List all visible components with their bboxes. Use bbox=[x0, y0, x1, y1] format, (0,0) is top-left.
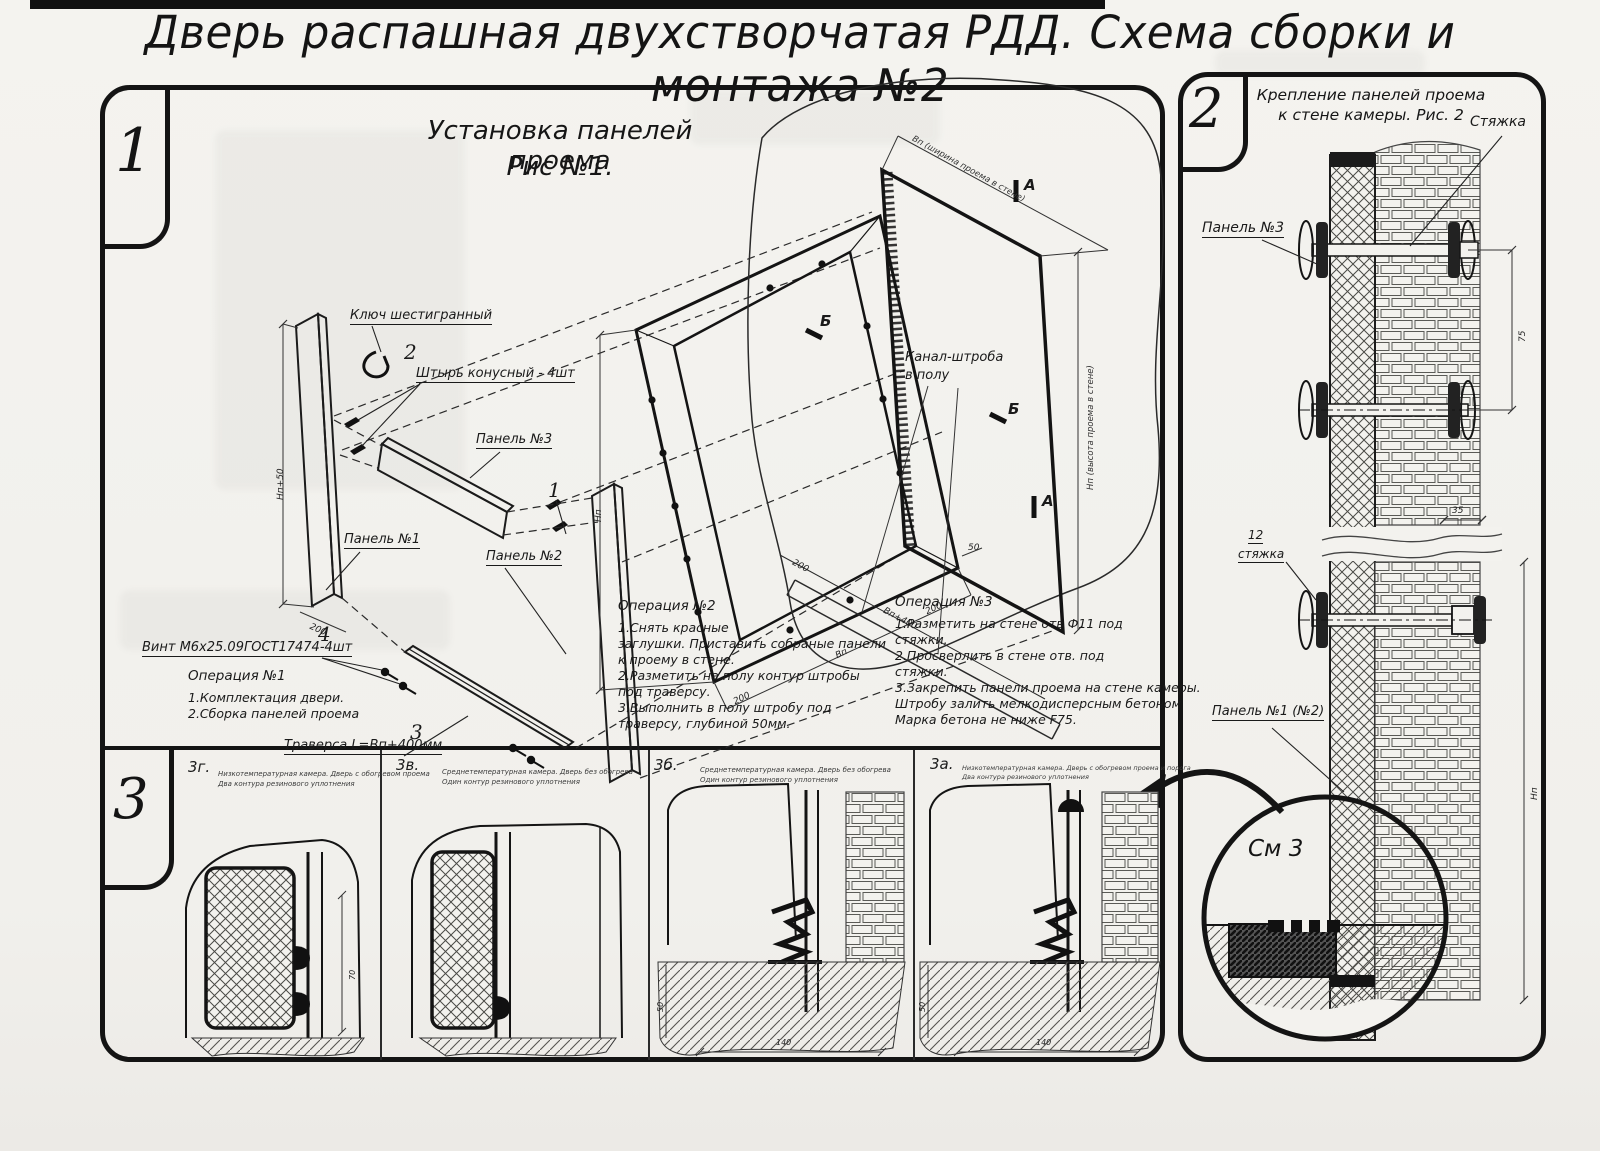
wall-opening bbox=[882, 170, 1063, 632]
operation-3-line: стяжки. bbox=[895, 632, 1201, 648]
figure2-title-line1: Крепление панелей проема bbox=[1256, 86, 1486, 104]
view-3a-caption1: Низкотемпературная камера. Дверь с обогр… bbox=[962, 764, 1191, 772]
label-channel-line2: в полу bbox=[905, 368, 949, 383]
operation-2-line: траверсу, глубиной 50мм. bbox=[618, 716, 886, 732]
label-panel3: Панель №3 bbox=[476, 432, 552, 449]
figure2-title-line2: к стене камеры. Рис. 2 bbox=[1256, 106, 1486, 124]
dim-wall-height: Нп bbox=[1530, 787, 1540, 800]
operation-3-line: стяжки. bbox=[895, 664, 1201, 680]
label-item1: 1 bbox=[548, 478, 561, 502]
operation-3-line: 1.Разметить на стене отв Ф11 под bbox=[895, 616, 1201, 632]
fig2-wall-upper bbox=[1375, 141, 1480, 525]
label-cone-pin: Штырь конусный - 4шт bbox=[416, 366, 575, 383]
operation-2-line: 2.Разметить на полу контур штробы bbox=[618, 668, 886, 684]
section-cut-flags bbox=[806, 180, 1034, 518]
operation-2-line: 1.Снять красные bbox=[618, 620, 886, 636]
view-3v-caption2: Один контур резинового уплотнения bbox=[442, 778, 580, 786]
view-3b-dim-h: 140 bbox=[776, 1038, 791, 1047]
view-3g-id: 3г. bbox=[188, 758, 210, 776]
label-see-3: См 3 bbox=[1248, 836, 1303, 862]
dim-np: Нп bbox=[594, 509, 604, 522]
view-3b-caption1: Среднетемпературная камера. Дверь без об… bbox=[700, 766, 891, 774]
operation-2: Операция №2 1.Снять красные заглушки. Пр… bbox=[618, 598, 886, 732]
label-panel12: Панель №1 (№2) bbox=[1212, 704, 1324, 721]
dim-np50: Нп+50 bbox=[276, 468, 286, 500]
view-3g-caption2: Два контура резинового уплотнения bbox=[218, 780, 355, 788]
view-3b-caption2: Один контур резинового уплотнения bbox=[700, 776, 838, 784]
operation-3-line: 3.Закрепить панели проема на стене камер… bbox=[895, 680, 1201, 696]
label-screw: Винт М6х25.09ГОСТ17474-4шт bbox=[142, 640, 352, 657]
label-pin-number: 2 bbox=[404, 340, 417, 364]
view-3g bbox=[186, 840, 364, 1056]
dim-35: 35 bbox=[1452, 506, 1463, 516]
label-hex-key: Ключ шестигранный bbox=[350, 308, 492, 325]
cut-mark-b2: Б bbox=[1008, 400, 1019, 418]
label-traverse: Траверса L=Вп+400мм bbox=[284, 738, 442, 755]
view-3v bbox=[412, 824, 622, 1056]
operation-3-line: 2.Просверлить в стене отв. под bbox=[895, 648, 1201, 664]
operation-2-line: к проему в стене. bbox=[618, 652, 886, 668]
view-3a-dim-v: 50 bbox=[918, 1002, 927, 1012]
figure1-subtitle: Рис №1. bbox=[400, 152, 720, 182]
cut-mark-a: А bbox=[1024, 176, 1036, 194]
drawing-sheet: Дверь распашная двухстворчатая РДД. Схем… bbox=[0, 0, 1600, 1151]
opening-dimensions bbox=[882, 136, 1108, 634]
dim-50: 50 bbox=[968, 543, 979, 553]
operation-1-title: Операция №1 bbox=[188, 668, 359, 684]
view-3b-dim-v: 50 bbox=[656, 1002, 665, 1012]
operation-3-title: Операция №3 bbox=[895, 594, 1201, 610]
view-3b bbox=[658, 784, 905, 1056]
operation-3-line: Марка бетона не ниже F75. bbox=[895, 712, 1201, 728]
view-3a-caption2: Два контура резинового уплотнения bbox=[962, 773, 1089, 781]
operation-3: Операция №3 1.Разметить на стене отв Ф11… bbox=[895, 594, 1201, 728]
operation-2-line: под траверсу. bbox=[618, 684, 886, 700]
view-3a-id: 3а. bbox=[930, 755, 954, 773]
label-tie12-number: 12 bbox=[1248, 528, 1263, 544]
operation-1: Операция №1 1.Комплектация двери. 2.Сбор… bbox=[188, 668, 359, 722]
view-3b-id: 3б. bbox=[654, 756, 678, 774]
label-channel-line1: Канал-штроба bbox=[905, 350, 1003, 365]
fig2-panel-strip bbox=[1330, 152, 1375, 1040]
operation-1-line: 1.Комплектация двери. bbox=[188, 690, 359, 706]
label-tie12: стяжка bbox=[1238, 547, 1284, 563]
view-3a-dim-h: 140 bbox=[1036, 1038, 1051, 1047]
operation-1-line: 2.Сборка панелей проема bbox=[188, 706, 359, 722]
label-fig2-panel3: Панель №3 bbox=[1202, 220, 1284, 238]
dim-opening-height: Нп (высота проема в стене) bbox=[1086, 365, 1096, 490]
view-3v-id: 3в. bbox=[396, 756, 419, 774]
label-tie: Стяжка bbox=[1470, 114, 1526, 130]
cut-mark-a2: А bbox=[1042, 492, 1054, 510]
operation-3-line: Штробу залить мелкодисперсным бетоном bbox=[895, 696, 1201, 712]
cut-mark-b: Б bbox=[820, 312, 831, 330]
technical-linework bbox=[0, 0, 1600, 1151]
label-panel2: Панель №2 bbox=[486, 549, 562, 566]
view-3v-caption1: Среднетемпературная камера. Дверь без об… bbox=[442, 768, 633, 776]
operation-2-title: Операция №2 bbox=[618, 598, 886, 614]
hex-key-icon bbox=[364, 352, 388, 377]
view-3g-dim: 70 bbox=[348, 970, 357, 980]
label-panel1: Панель №1 bbox=[344, 532, 420, 549]
floor-detail bbox=[1203, 920, 1448, 1046]
operation-2-line: заглушки. Приставить собраные панели bbox=[618, 636, 886, 652]
operation-2-line: 3.Выполнить в полу штробу под bbox=[618, 700, 886, 716]
view-3a bbox=[920, 784, 1160, 1056]
dim-75: 75 bbox=[1518, 331, 1528, 342]
